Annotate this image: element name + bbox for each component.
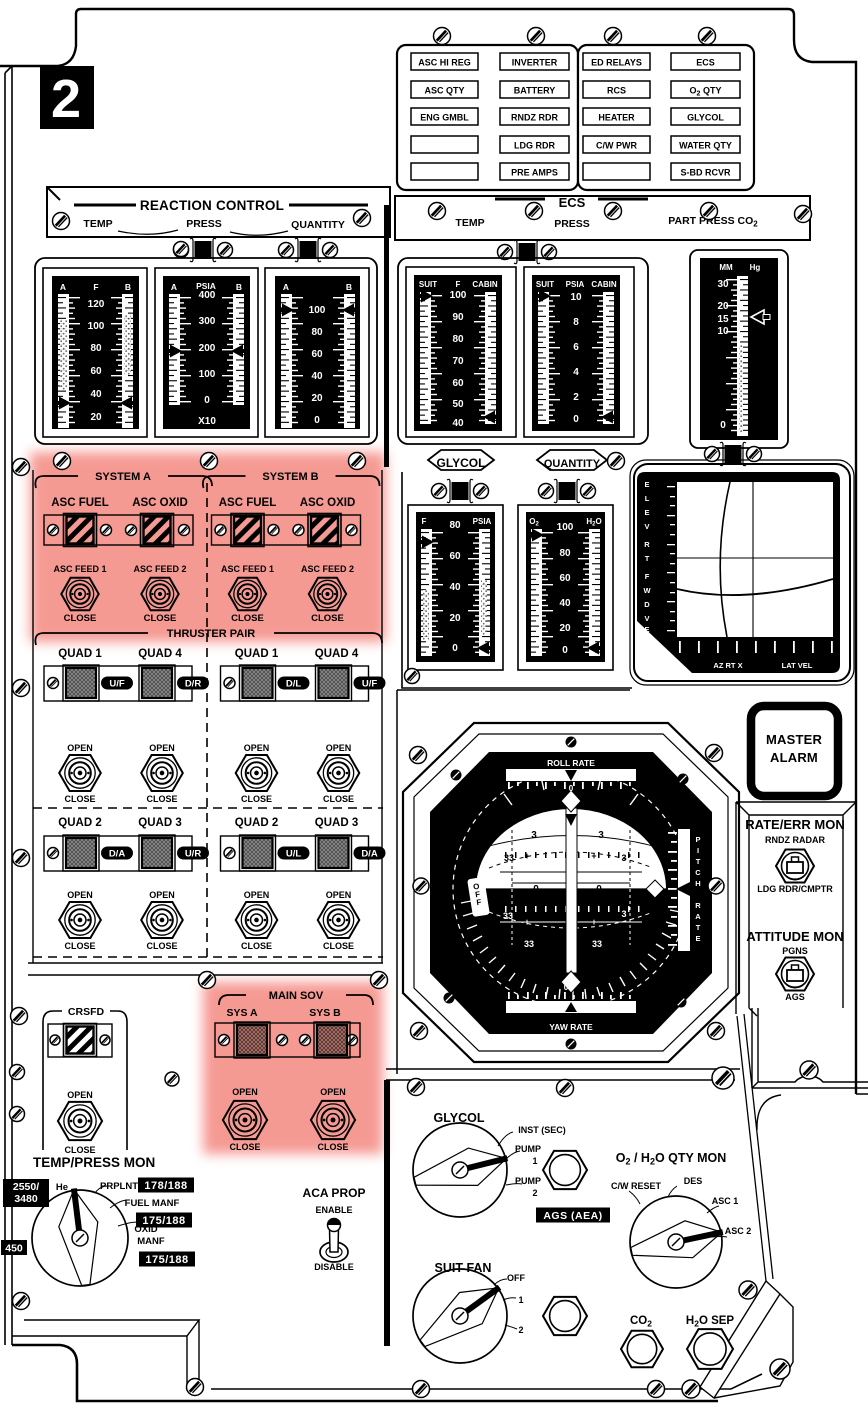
svg-text:8: 8 (573, 317, 579, 328)
svg-text:TEMP/PRESS MON: TEMP/PRESS MON (33, 1155, 155, 1170)
svg-text:80: 80 (452, 334, 464, 345)
svg-text:GLYCOL: GLYCOL (437, 456, 486, 470)
svg-text:ASC 2: ASC 2 (725, 1226, 752, 1236)
svg-text:OPEN: OPEN (320, 1087, 346, 1097)
svg-text:E: E (644, 480, 649, 489)
svg-text:ASC FEED 1: ASC FEED 1 (53, 564, 106, 574)
svg-text:A: A (60, 282, 66, 292)
svg-text:ASC FEED 2: ASC FEED 2 (301, 564, 354, 574)
svg-text:X10: X10 (198, 416, 216, 427)
svg-text:CABIN: CABIN (472, 280, 498, 289)
svg-text:ASC FEED 2: ASC FEED 2 (133, 564, 186, 574)
svg-text:0: 0 (720, 420, 726, 431)
svg-text:SUIT: SUIT (536, 280, 554, 289)
svg-text:C/W PWR: C/W PWR (596, 141, 637, 151)
svg-text:MANF: MANF (137, 1236, 165, 1247)
svg-text:OPEN: OPEN (149, 890, 175, 900)
svg-text:CLOSE: CLOSE (311, 613, 344, 624)
svg-text:90: 90 (452, 312, 464, 323)
svg-text:2: 2 (51, 69, 81, 129)
svg-text:100: 100 (450, 290, 467, 301)
svg-text:V: V (644, 522, 649, 531)
svg-text:E: E (644, 625, 649, 634)
svg-text:U/F: U/F (362, 679, 378, 690)
svg-text:2: 2 (518, 1325, 523, 1335)
svg-text:0: 0 (452, 643, 458, 654)
svg-text:THRUSTER PAIR: THRUSTER PAIR (167, 628, 255, 640)
svg-text:20: 20 (559, 623, 571, 634)
svg-text:40: 40 (311, 371, 323, 382)
svg-text:0: 0 (569, 784, 574, 793)
svg-text:CLOSE: CLOSE (146, 794, 177, 804)
svg-text:3480: 3480 (14, 1193, 38, 1205)
svg-text:RNDZ RDR: RNDZ RDR (511, 113, 558, 123)
svg-text:DISABLE: DISABLE (314, 1262, 354, 1272)
svg-text:400: 400 (199, 290, 216, 301)
svg-text:OPEN: OPEN (232, 1087, 258, 1097)
svg-text:60: 60 (449, 551, 461, 562)
svg-text:A: A (695, 912, 701, 921)
svg-text:60: 60 (311, 349, 323, 360)
svg-text:MAIN SOV: MAIN SOV (269, 990, 324, 1002)
svg-text:E: E (644, 508, 649, 517)
svg-text:6: 6 (573, 342, 579, 353)
svg-text:OFF: OFF (507, 1273, 525, 1283)
svg-text:CLOSE: CLOSE (146, 941, 177, 951)
svg-text:He: He (56, 1182, 68, 1193)
svg-text:60: 60 (452, 378, 464, 389)
svg-text:60: 60 (559, 573, 571, 584)
svg-text:1: 1 (532, 1156, 537, 1166)
svg-text:0: 0 (564, 983, 569, 992)
svg-text:B: B (346, 282, 352, 292)
svg-text:1: 1 (518, 1295, 523, 1305)
svg-text:SYS A: SYS A (226, 1007, 258, 1019)
svg-text:D: D (644, 600, 650, 609)
svg-text:200: 200 (199, 343, 216, 354)
svg-text:80: 80 (449, 520, 461, 531)
svg-text:LDG RDR/CMPTR: LDG RDR/CMPTR (757, 884, 833, 894)
svg-text:4: 4 (573, 367, 579, 378)
svg-text:+: + (524, 917, 529, 927)
svg-text:ED RELAYS: ED RELAYS (591, 58, 642, 68)
svg-text:BATTERY: BATTERY (514, 86, 556, 96)
svg-text:300: 300 (199, 316, 216, 327)
svg-text:3: 3 (598, 830, 604, 841)
svg-text:CLOSE: CLOSE (144, 613, 177, 624)
svg-text:15: 15 (717, 314, 729, 325)
svg-text:100: 100 (88, 321, 105, 332)
svg-text:0: 0 (204, 395, 210, 406)
svg-text:2: 2 (532, 1188, 537, 1198)
svg-text:PRESS: PRESS (186, 218, 222, 230)
svg-text:10: 10 (717, 326, 729, 337)
svg-text:100: 100 (309, 305, 326, 316)
svg-text:L: L (645, 494, 650, 503)
svg-text:D/A: D/A (361, 849, 378, 860)
svg-text:R: R (644, 540, 650, 549)
svg-text:175/188: 175/188 (145, 1254, 188, 1266)
svg-text:I: I (697, 846, 699, 855)
svg-text:ATTITUDE MON: ATTITUDE MON (746, 929, 843, 944)
svg-text:OPEN: OPEN (149, 743, 175, 753)
svg-text:CLOSE: CLOSE (241, 794, 272, 804)
svg-text:ASC QTY: ASC QTY (424, 86, 464, 96)
svg-text:ENABLE: ENABLE (315, 1205, 352, 1215)
svg-text:RATE/ERR MON: RATE/ERR MON (745, 817, 844, 832)
svg-text:PGNS: PGNS (782, 946, 808, 956)
svg-text:QUANTITY: QUANTITY (291, 219, 345, 231)
svg-text:+: + (591, 917, 596, 927)
svg-text:H: H (695, 879, 700, 888)
svg-text:100: 100 (199, 369, 216, 380)
svg-text:FUEL MANF: FUEL MANF (125, 1198, 180, 1209)
svg-text:40: 40 (559, 598, 571, 609)
svg-text:ASC FUEL: ASC FUEL (219, 497, 277, 509)
svg-text:GLYCOL: GLYCOL (687, 113, 724, 123)
svg-text:ASC FEED 1: ASC FEED 1 (221, 564, 274, 574)
svg-text:B: B (236, 282, 242, 292)
svg-text:Hg: Hg (750, 263, 761, 272)
svg-text:3: 3 (531, 830, 537, 841)
svg-text:ALARM: ALARM (770, 750, 818, 765)
svg-text:QUAD 4: QUAD 4 (315, 648, 359, 660)
svg-text:0: 0 (314, 415, 320, 426)
svg-text:30: 30 (717, 279, 729, 290)
svg-text:OPEN: OPEN (326, 743, 352, 753)
svg-text:OXID: OXID (134, 1224, 157, 1235)
svg-text:20: 20 (717, 301, 729, 312)
svg-text:HEATER: HEATER (598, 113, 635, 123)
svg-text:PUMP: PUMP (515, 1144, 541, 1154)
svg-text:CLOSE: CLOSE (64, 941, 95, 951)
svg-text:QUAD 3: QUAD 3 (138, 817, 181, 829)
svg-text:QUAD 1: QUAD 1 (58, 648, 102, 660)
svg-text:F: F (456, 280, 461, 289)
svg-text:OPEN: OPEN (67, 743, 93, 753)
svg-text:QUAD 1: QUAD 1 (235, 648, 279, 660)
svg-text:3: 3 (621, 909, 626, 919)
svg-text:CLOSE: CLOSE (241, 941, 272, 951)
svg-text:U/L: U/L (286, 849, 302, 860)
svg-text:ASC FUEL: ASC FUEL (51, 497, 109, 509)
svg-text:100: 100 (557, 522, 574, 533)
svg-text:H2O SEP: H2O SEP (686, 1315, 735, 1329)
svg-text:PRE AMPS: PRE AMPS (511, 168, 558, 178)
svg-text:20: 20 (311, 393, 323, 404)
svg-text:ASC OXID: ASC OXID (132, 497, 188, 509)
svg-text:20: 20 (449, 613, 461, 624)
svg-text:3: 3 (621, 853, 626, 863)
svg-text:10: 10 (570, 292, 582, 303)
svg-text:DES: DES (684, 1176, 703, 1186)
svg-text:PUMP: PUMP (515, 1176, 541, 1186)
svg-text:YAW RATE: YAW RATE (549, 1022, 593, 1032)
svg-text:F: F (422, 517, 427, 526)
svg-text:CLOSE: CLOSE (64, 1145, 95, 1155)
svg-text:60: 60 (90, 366, 102, 377)
svg-text:AGS (AEA): AGS (AEA) (543, 1210, 602, 1222)
svg-text:SYSTEM B: SYSTEM B (262, 471, 318, 483)
svg-text:S-BD RCVR: S-BD RCVR (680, 168, 731, 178)
svg-text:ASC HI REG: ASC HI REG (418, 58, 471, 68)
svg-text:ECS: ECS (696, 58, 715, 68)
svg-text:D/R: D/R (185, 679, 202, 690)
svg-text:INST (SEC): INST (SEC) (518, 1125, 566, 1135)
svg-text:O2 / H2O QTY MON: O2 / H2O QTY MON (616, 1151, 727, 1167)
svg-text:U/F: U/F (109, 679, 125, 690)
svg-text:120: 120 (88, 299, 105, 310)
svg-text:T: T (645, 554, 650, 563)
svg-text:OPEN: OPEN (326, 890, 352, 900)
svg-text:B: B (125, 282, 131, 292)
svg-text:CLOSE: CLOSE (323, 941, 354, 951)
svg-text:33: 33 (592, 939, 602, 949)
svg-text:80: 80 (90, 343, 102, 354)
svg-text:450: 450 (5, 1243, 23, 1255)
svg-text:V: V (644, 614, 649, 623)
svg-text:SYS B: SYS B (309, 1007, 341, 1019)
svg-text:E: E (695, 934, 700, 943)
svg-text:F: F (93, 282, 98, 292)
svg-text:A: A (171, 282, 177, 292)
svg-text:PRPLNT: PRPLNT (100, 1181, 138, 1192)
svg-text:MM: MM (719, 263, 733, 272)
svg-text:CLOSE: CLOSE (64, 613, 97, 624)
svg-text:RNDZ RADAR: RNDZ RADAR (765, 835, 825, 845)
svg-text:CLOSE: CLOSE (229, 1142, 260, 1152)
svg-text:D/A: D/A (109, 849, 126, 860)
svg-text:C: C (695, 868, 701, 877)
svg-text:178/188: 178/188 (144, 1180, 187, 1192)
svg-text:F: F (645, 572, 650, 581)
svg-text:70: 70 (452, 356, 464, 367)
svg-text:SYSTEM A: SYSTEM A (95, 471, 151, 483)
svg-text:40: 40 (452, 418, 464, 429)
svg-text:QUANTITY: QUANTITY (544, 458, 601, 470)
svg-text:T: T (696, 923, 701, 932)
svg-text:CLOSE: CLOSE (317, 1142, 348, 1152)
svg-text:+: + (591, 851, 596, 861)
svg-text:0: 0 (573, 414, 579, 425)
svg-text:CLOSE: CLOSE (323, 794, 354, 804)
svg-text:CLOSE: CLOSE (231, 613, 264, 624)
svg-text:CABIN: CABIN (591, 280, 617, 289)
svg-text:ROLL RATE: ROLL RATE (547, 758, 595, 768)
svg-text:T: T (696, 857, 701, 866)
svg-text:AGS: AGS (785, 992, 805, 1002)
svg-text:QUAD 4: QUAD 4 (138, 648, 182, 660)
svg-text:20: 20 (90, 412, 102, 423)
svg-text:INVERTER: INVERTER (512, 58, 558, 68)
svg-text:CRSFD: CRSFD (68, 1006, 105, 1018)
svg-text:CLOSE: CLOSE (64, 794, 95, 804)
svg-text:OPEN: OPEN (67, 890, 93, 900)
svg-text:80: 80 (311, 327, 323, 338)
svg-text:P: P (695, 835, 700, 844)
svg-text:40: 40 (449, 582, 461, 593)
svg-text:D/L: D/L (286, 679, 302, 690)
svg-text:LDG RDR: LDG RDR (514, 141, 555, 151)
svg-text:ECS: ECS (559, 195, 586, 210)
svg-text:AZ RT X: AZ RT X (713, 661, 742, 670)
svg-text:33: 33 (524, 939, 534, 949)
svg-text:TEMP: TEMP (455, 217, 484, 229)
svg-text:40: 40 (90, 389, 102, 400)
svg-text:C/W RESET: C/W RESET (611, 1181, 662, 1191)
svg-text:OPEN: OPEN (244, 890, 270, 900)
svg-text:QUAD 2: QUAD 2 (235, 817, 278, 829)
svg-text:ENG GMBL: ENG GMBL (420, 113, 469, 123)
svg-text:PRESS: PRESS (554, 218, 590, 230)
svg-text:80: 80 (559, 548, 571, 559)
svg-text:TEMP: TEMP (83, 218, 112, 230)
svg-text:ASC 1: ASC 1 (712, 1196, 739, 1206)
svg-text:SUIT: SUIT (419, 280, 437, 289)
svg-text:ACA PROP: ACA PROP (303, 1186, 366, 1200)
svg-text:50: 50 (452, 399, 464, 410)
svg-text:REACTION CONTROL: REACTION CONTROL (140, 198, 284, 213)
svg-text:PSIA: PSIA (473, 517, 492, 526)
svg-text:WATER QTY: WATER QTY (679, 141, 732, 151)
svg-text:A: A (283, 282, 289, 292)
svg-text:OPEN: OPEN (244, 743, 270, 753)
svg-text:0: 0 (562, 645, 568, 656)
svg-text:2: 2 (573, 392, 579, 403)
svg-text:W: W (643, 586, 651, 595)
svg-text:U/R: U/R (185, 849, 202, 860)
svg-text:QUAD 3: QUAD 3 (315, 817, 358, 829)
svg-text:L: L (645, 636, 650, 645)
svg-text:LAT VEL: LAT VEL (782, 661, 813, 670)
svg-text:MASTER: MASTER (766, 732, 823, 747)
svg-text:ASC OXID: ASC OXID (300, 497, 356, 509)
svg-text:PSIA: PSIA (566, 280, 585, 289)
svg-text:2550/: 2550/ (13, 1181, 39, 1193)
svg-text:R: R (695, 901, 701, 910)
svg-text:QUAD 2: QUAD 2 (58, 817, 101, 829)
svg-text:RCS: RCS (607, 86, 626, 96)
svg-text:OPEN: OPEN (67, 1090, 93, 1100)
